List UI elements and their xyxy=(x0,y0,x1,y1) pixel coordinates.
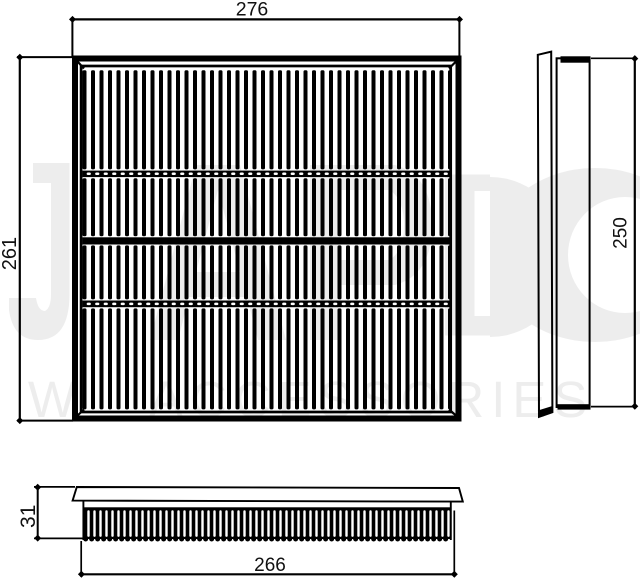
svg-text:276: 276 xyxy=(236,0,269,20)
svg-text:31: 31 xyxy=(17,505,40,528)
svg-text:250: 250 xyxy=(611,217,632,249)
svg-text:261: 261 xyxy=(0,237,21,270)
svg-text:W: W xyxy=(28,371,76,428)
svg-text:266: 266 xyxy=(254,555,286,576)
